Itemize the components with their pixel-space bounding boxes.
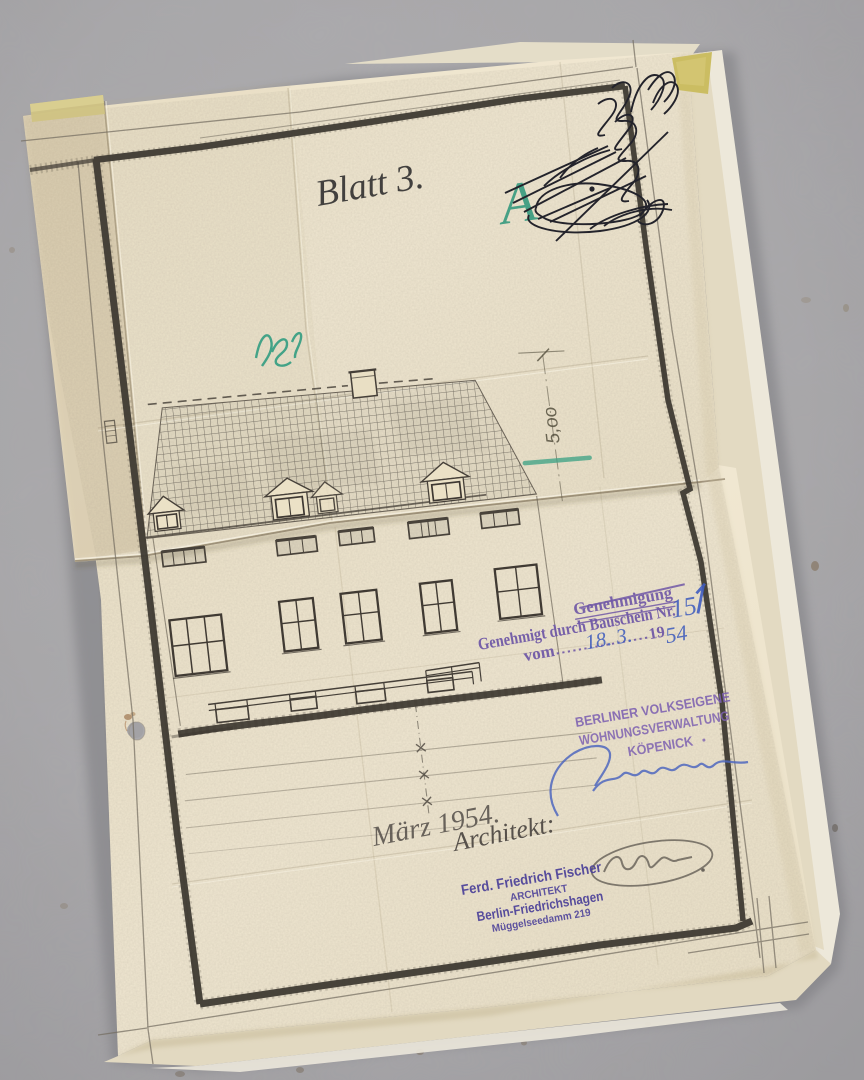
svg-text:15: 15 [668, 591, 699, 624]
svg-text:54: 54 [663, 620, 689, 648]
svg-text:5,oo: 5,oo [540, 406, 565, 445]
